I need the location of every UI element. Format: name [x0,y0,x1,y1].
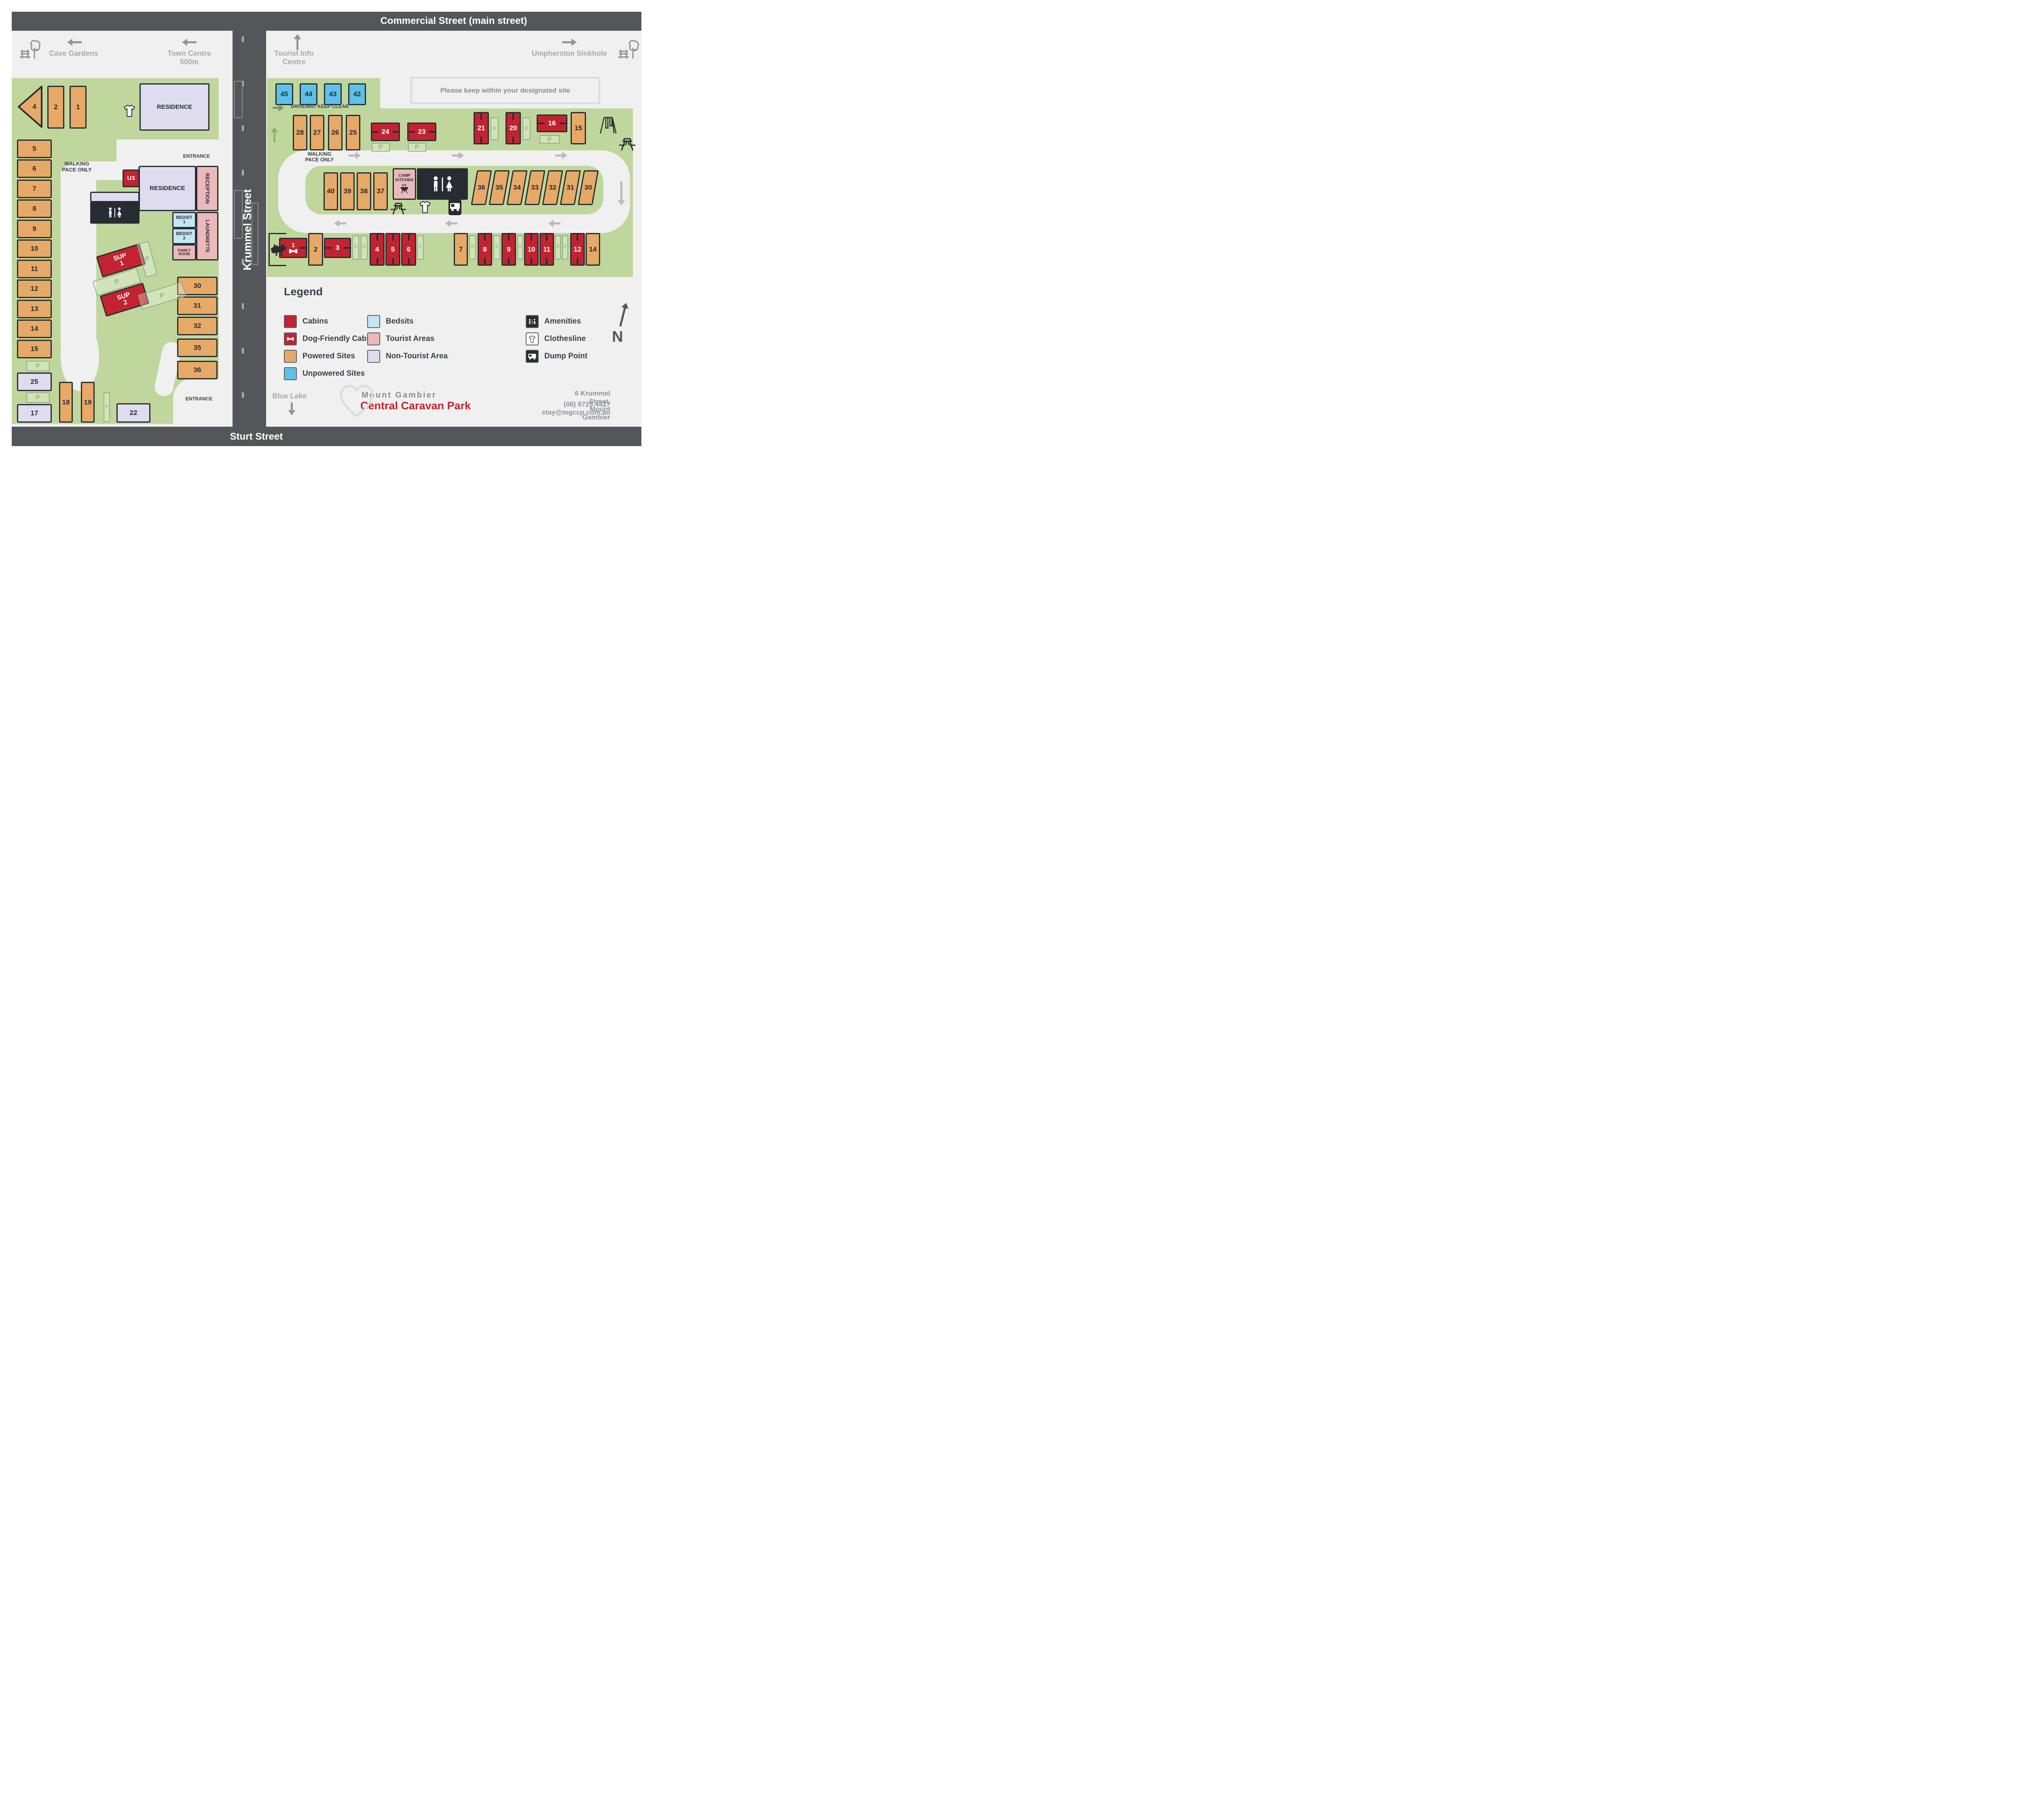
family-room: FAMILY ROOM [172,244,196,260]
site-2-right: 2 [308,233,323,266]
site-25-right: 25 [346,115,360,150]
site-7-right-label: 7 [459,246,463,253]
site-36-left-label: 36 [194,366,201,373]
picnic-icon [618,138,637,151]
cabin-24-label: 24 [382,128,389,135]
site-12: 12 [17,279,52,298]
site-1-label: 1 [76,104,80,110]
parking-p: P [26,361,50,371]
site-40: 40 [324,172,338,210]
bedsit-2-label: BEDSIT 2 [176,232,192,241]
site-18-label: 18 [62,399,70,406]
clothesline-icon [419,201,431,214]
cabin-u3-label: U3 [127,175,135,181]
cabin-12-label: 12 [574,246,582,253]
site-10: 10 [17,239,52,258]
legend-swatch-clothesline-icon [526,332,539,345]
poi-cave-gardens: Cave Gardens [49,49,98,58]
site-31-right-label: 31 [567,184,574,191]
arrow-loop-down [618,181,625,207]
cabin-11: 11 [539,233,554,266]
legend-item-dump: Dump Point [526,350,588,363]
street-commercial: Commercial Street (main street) [381,15,527,27]
site-15-right: 15 [571,112,586,144]
site-35-right-label: 35 [495,184,503,191]
tree-bench-icon [19,39,41,60]
site-6-label: 6 [32,165,36,172]
site-25-right-label: 25 [349,129,357,136]
cabin-21-label: 21 [478,125,485,131]
site-42-label: 42 [353,91,361,97]
parking-p: P [372,143,390,152]
site-4: 4 [17,84,44,129]
cabin-6: 6 [401,233,416,266]
site-27: 27 [310,115,324,150]
legend-label: Dump Point [544,352,588,361]
legend-label: Powered Sites [302,352,355,361]
cabin-11-label: 11 [543,246,550,253]
street-krummel: Krummel Street [241,189,254,270]
legend-title: Legend [284,286,323,298]
site-13: 13 [17,300,52,318]
parking-p: P [522,117,531,140]
commercial-street-bar [12,12,641,31]
legend-swatch-powered-icon [284,350,297,363]
residence-ext [90,192,140,202]
site-15: 15 [17,340,52,358]
parking-p-label: P [556,245,559,250]
site-37: 37 [373,172,388,210]
arrow-loop-4 [334,220,346,229]
site-15-right-label: 15 [575,125,582,131]
site-9: 9 [17,220,52,238]
cabin-9: 9 [501,233,516,266]
cabin-21: 21 [474,112,489,144]
site-27-label: 27 [313,129,321,136]
site-17: 17 [17,404,52,423]
street-sturt: Sturt Street [230,431,283,442]
site-14-label: 14 [31,325,38,332]
dump-point-icon [448,199,461,215]
parking-p: P [352,235,359,260]
residence-main: RESIDENCE [139,166,196,211]
arrow-in [271,127,278,144]
site-7-label: 7 [32,185,36,192]
parking-p: P [493,235,500,260]
arrow-tourist-info [294,34,301,52]
left-road-loop [61,322,99,391]
parking-p: P [361,235,368,260]
site-30-right-label: 30 [584,184,592,191]
site-25-left: 25 [17,372,52,391]
site-14-right: 14 [586,233,600,266]
clothesline-icon [124,104,135,117]
legend-swatch-non_tourist-icon [367,350,380,363]
cabin-24: 24 [371,123,400,141]
picnic-icon [389,202,408,215]
site-26-label: 26 [332,129,339,136]
site-25-left-label: 25 [31,378,38,385]
cabin-4: 4 [370,233,385,266]
bbq-icon [400,184,409,194]
parking-p-label: P [419,245,422,250]
entrance-bottom: ENTRANCE [186,396,213,402]
heart-logo [338,381,375,421]
site-8-label: 8 [32,205,36,212]
site-39: 39 [340,172,355,210]
parking-p-label: P [415,144,419,150]
notice-text: Please keep within your designated site [440,87,570,95]
parking-p-label: P [495,245,498,250]
legend-swatch-amenities-icon [526,315,539,328]
site-26: 26 [328,115,343,150]
site-19-label: 19 [84,399,92,406]
site-22-label: 22 [130,409,137,416]
left-road-entrance [173,378,233,427]
cabin-16: 16 [537,114,567,132]
sturt-street-bar [12,427,641,446]
tree-bench-icon [618,39,640,60]
cabin-10-label: 10 [528,246,535,253]
camp-kitchen-label: CAMP KITCHEN [396,174,413,182]
laundrette-label: LAUNDRETTE [205,220,209,252]
site-14: 14 [17,320,52,338]
legend-item-powered: Powered Sites [284,350,355,363]
cabin-u3: U3 [123,169,140,187]
site-36-left: 36 [177,361,218,379]
parking-p-label: P [519,245,522,250]
site-19: 19 [81,382,95,423]
site-38-label: 38 [360,188,368,195]
walking-pace-left: WALKING PACE ONLY [62,161,92,173]
amenities-figures-icon [427,175,457,193]
site-7-right: 7 [454,233,468,266]
bedsit-1-label: BEDSIT 1 [176,216,192,224]
legend-label: Non-Tourist Area [386,352,448,361]
parking-p-label: P [105,405,108,409]
site-15-label: 15 [31,345,38,352]
parking-p-label: P [36,362,40,369]
cabin-9-label: 9 [507,246,510,253]
reception-label: RECEPTION [205,173,210,204]
parking-p: P [539,135,560,144]
site-40-label: 40 [327,188,335,195]
arrow-loop-2 [452,152,464,161]
legend-label: Clothesline [544,334,586,343]
legend-item-bedsit: Bedsits [367,315,414,328]
cabin-3: 3 [324,238,351,258]
legend-label: Unpowered Sites [302,369,365,378]
site-33-label: 33 [531,184,539,191]
site-12-label: 12 [31,285,38,292]
playground-icon [599,116,617,134]
site-37-label: 37 [377,188,385,195]
brand-contact: (08) 8725 4427 stay@mgccp.com.au [541,400,610,416]
cabin-20-label: 20 [510,125,517,131]
residence-top: RESIDENCE [140,83,209,131]
site-5-label: 5 [32,145,36,152]
residence-top-label: RESIDENCE [157,104,192,110]
arrow-loop-1 [349,152,361,161]
legend-swatch-dog-icon [284,332,297,345]
site-1: 1 [70,86,87,129]
site-45: 45 [275,83,293,105]
site-2-label: 2 [54,104,57,110]
site-7: 7 [17,180,52,198]
cabin-8-label: 8 [483,246,486,253]
cabin-20: 20 [505,112,521,144]
bedsit-1: BEDSIT 1 [172,212,196,228]
poi-town-centre: Town Centre 500m [167,49,211,66]
dog-icon [269,242,286,257]
cabin-sup1-label: SUP 1 [112,252,129,269]
site-32-left-label: 32 [194,322,201,329]
parking-p: P [562,235,568,260]
site-44: 44 [300,83,317,105]
entrance-top: ENTRANCE [183,154,210,159]
legend-swatch-unpowered-icon [284,367,297,380]
legend-item-amenities: Amenities [526,315,581,328]
site-5: 5 [17,140,52,158]
legend-item-non_tourist: Non-Tourist Area [367,350,448,363]
amenities-figures-icon [100,207,129,219]
parking-p: P [555,235,561,260]
cabin-16-label: 16 [548,120,556,127]
cabin-sup2-label: SUP 2 [116,292,133,308]
site-28-label: 28 [296,129,304,136]
arrow-umpherston [562,39,577,48]
poi-umpherston: Umpherston Sinkhole [532,49,607,58]
site-31-left: 31 [177,296,218,315]
arrow-town [182,39,197,48]
brand-name: Central Caravan Park [360,400,471,412]
legend-label: Amenities [544,317,581,326]
compass-n: N [612,328,623,346]
parking-p-label: P [547,136,552,143]
site-35-left-label: 35 [194,344,201,351]
cabin-5-label: 5 [391,246,395,253]
parking-p: P [408,143,426,152]
designated-site-notice: Please keep within your designated site [410,77,600,104]
legend-swatch-cabin-icon [284,315,297,328]
arrow-blue-lake [288,402,295,417]
parking-p-label: P [525,126,528,131]
legend-swatch-tourist-icon [367,332,380,345]
parking-p-label: P [379,144,383,150]
site-6: 6 [17,159,52,178]
legend-label: Tourist Areas [386,334,434,343]
parking-p-label: P [363,245,366,250]
site-17-label: 17 [31,410,38,417]
walking-pace-right: WALKING PACE ONLY [305,151,334,163]
parking-p: P [469,235,476,260]
parking-p-label: P [564,245,567,250]
site-9-label: 9 [32,225,36,232]
arrow-loop-6 [548,220,560,229]
legend-label: Bedsits [386,317,414,326]
driveway-keep-clear: DRIVEWAY KEEP CLEAR [291,104,349,110]
legend-swatch-dump-icon [526,350,539,363]
cabin-23: 23 [407,123,436,141]
parking-p-label: P [36,394,40,401]
site-28: 28 [293,115,307,150]
parking-p-label: P [493,126,496,131]
bedsit-2: BEDSIT 2 [172,228,196,244]
site-8: 8 [17,199,52,218]
parking-p: P [26,392,50,403]
parking-p-label: P [159,292,165,300]
site-10-label: 10 [31,245,38,252]
cabin-1-dog-label: 1 [292,242,295,248]
residence-main-label: RESIDENCE [150,185,185,191]
legend-item-clothesline: Clothesline [526,332,586,345]
arrow-cave [67,39,82,48]
site-45-label: 45 [281,91,288,97]
site-32-right-label: 32 [549,184,556,191]
cabin-23-label: 23 [418,128,426,135]
site-43-label: 43 [329,91,337,97]
legend-item-unpowered: Unpowered Sites [284,367,365,380]
cabin-4-label: 4 [375,246,379,253]
amenities-left [90,202,140,224]
legend-item-cabin: Cabins [284,315,328,328]
parking-p-label: P [114,278,120,286]
site-39-label: 39 [344,188,351,195]
site-44-label: 44 [305,91,313,97]
cabin-8: 8 [478,233,492,266]
site-22: 22 [116,403,150,423]
camp-kitchen: CAMP KITCHEN [393,168,416,200]
amenities-right [417,168,468,200]
arrow-loop-5 [445,220,457,229]
cabin-5: 5 [385,233,400,266]
site-42: 42 [348,83,366,105]
site-14-right-label: 14 [589,246,597,253]
site-31-left-label: 31 [194,302,201,309]
laundrette: LAUNDRETTE [196,212,218,260]
arrow-loop-3 [555,152,567,161]
bone-icon [289,249,298,254]
legend-label: Cabins [302,317,328,326]
parking-p: P [104,392,110,422]
site-34-label: 34 [513,184,521,191]
site-11: 11 [17,260,52,278]
site-30-left-label: 30 [194,282,201,289]
cabin-3-label: 3 [336,244,339,251]
parking-p-label: P [354,245,357,250]
cabin-12: 12 [570,233,585,266]
cabin-10: 10 [524,233,539,266]
site-43: 43 [324,83,342,105]
site-32-left: 32 [177,317,218,335]
parking-p-label: P [471,245,474,250]
legend-label: Dog-Friendly Cabin [302,334,373,343]
cabin-6-label: 6 [407,246,410,253]
site-38: 38 [357,172,371,210]
parking-p-label: P [144,255,150,263]
site-2: 2 [47,86,64,129]
family-room-label: FAMILY ROOM [178,249,190,256]
parking-p: P [417,235,424,260]
site-36-right-label: 36 [478,184,485,191]
parking-p: P [517,235,523,260]
parking-p: P [491,117,499,140]
arrow-driveway [273,104,284,113]
legend-swatch-bedsit-icon [367,315,380,328]
reception: RECEPTION [196,166,218,211]
site-11-label: 11 [31,265,38,272]
legend-item-dog: Dog-Friendly Cabin [284,332,373,345]
site-2-right-label: 2 [314,246,317,253]
legend-item-tourist: Tourist Areas [367,332,434,345]
site-13-label: 13 [31,305,38,312]
caravan-park-map: Please keep within your designated site … [0,0,653,455]
poi-blue-lake: Blue Lake [272,392,307,400]
street-bay [234,81,243,118]
site-35-left: 35 [177,339,218,357]
site-18: 18 [59,382,73,423]
